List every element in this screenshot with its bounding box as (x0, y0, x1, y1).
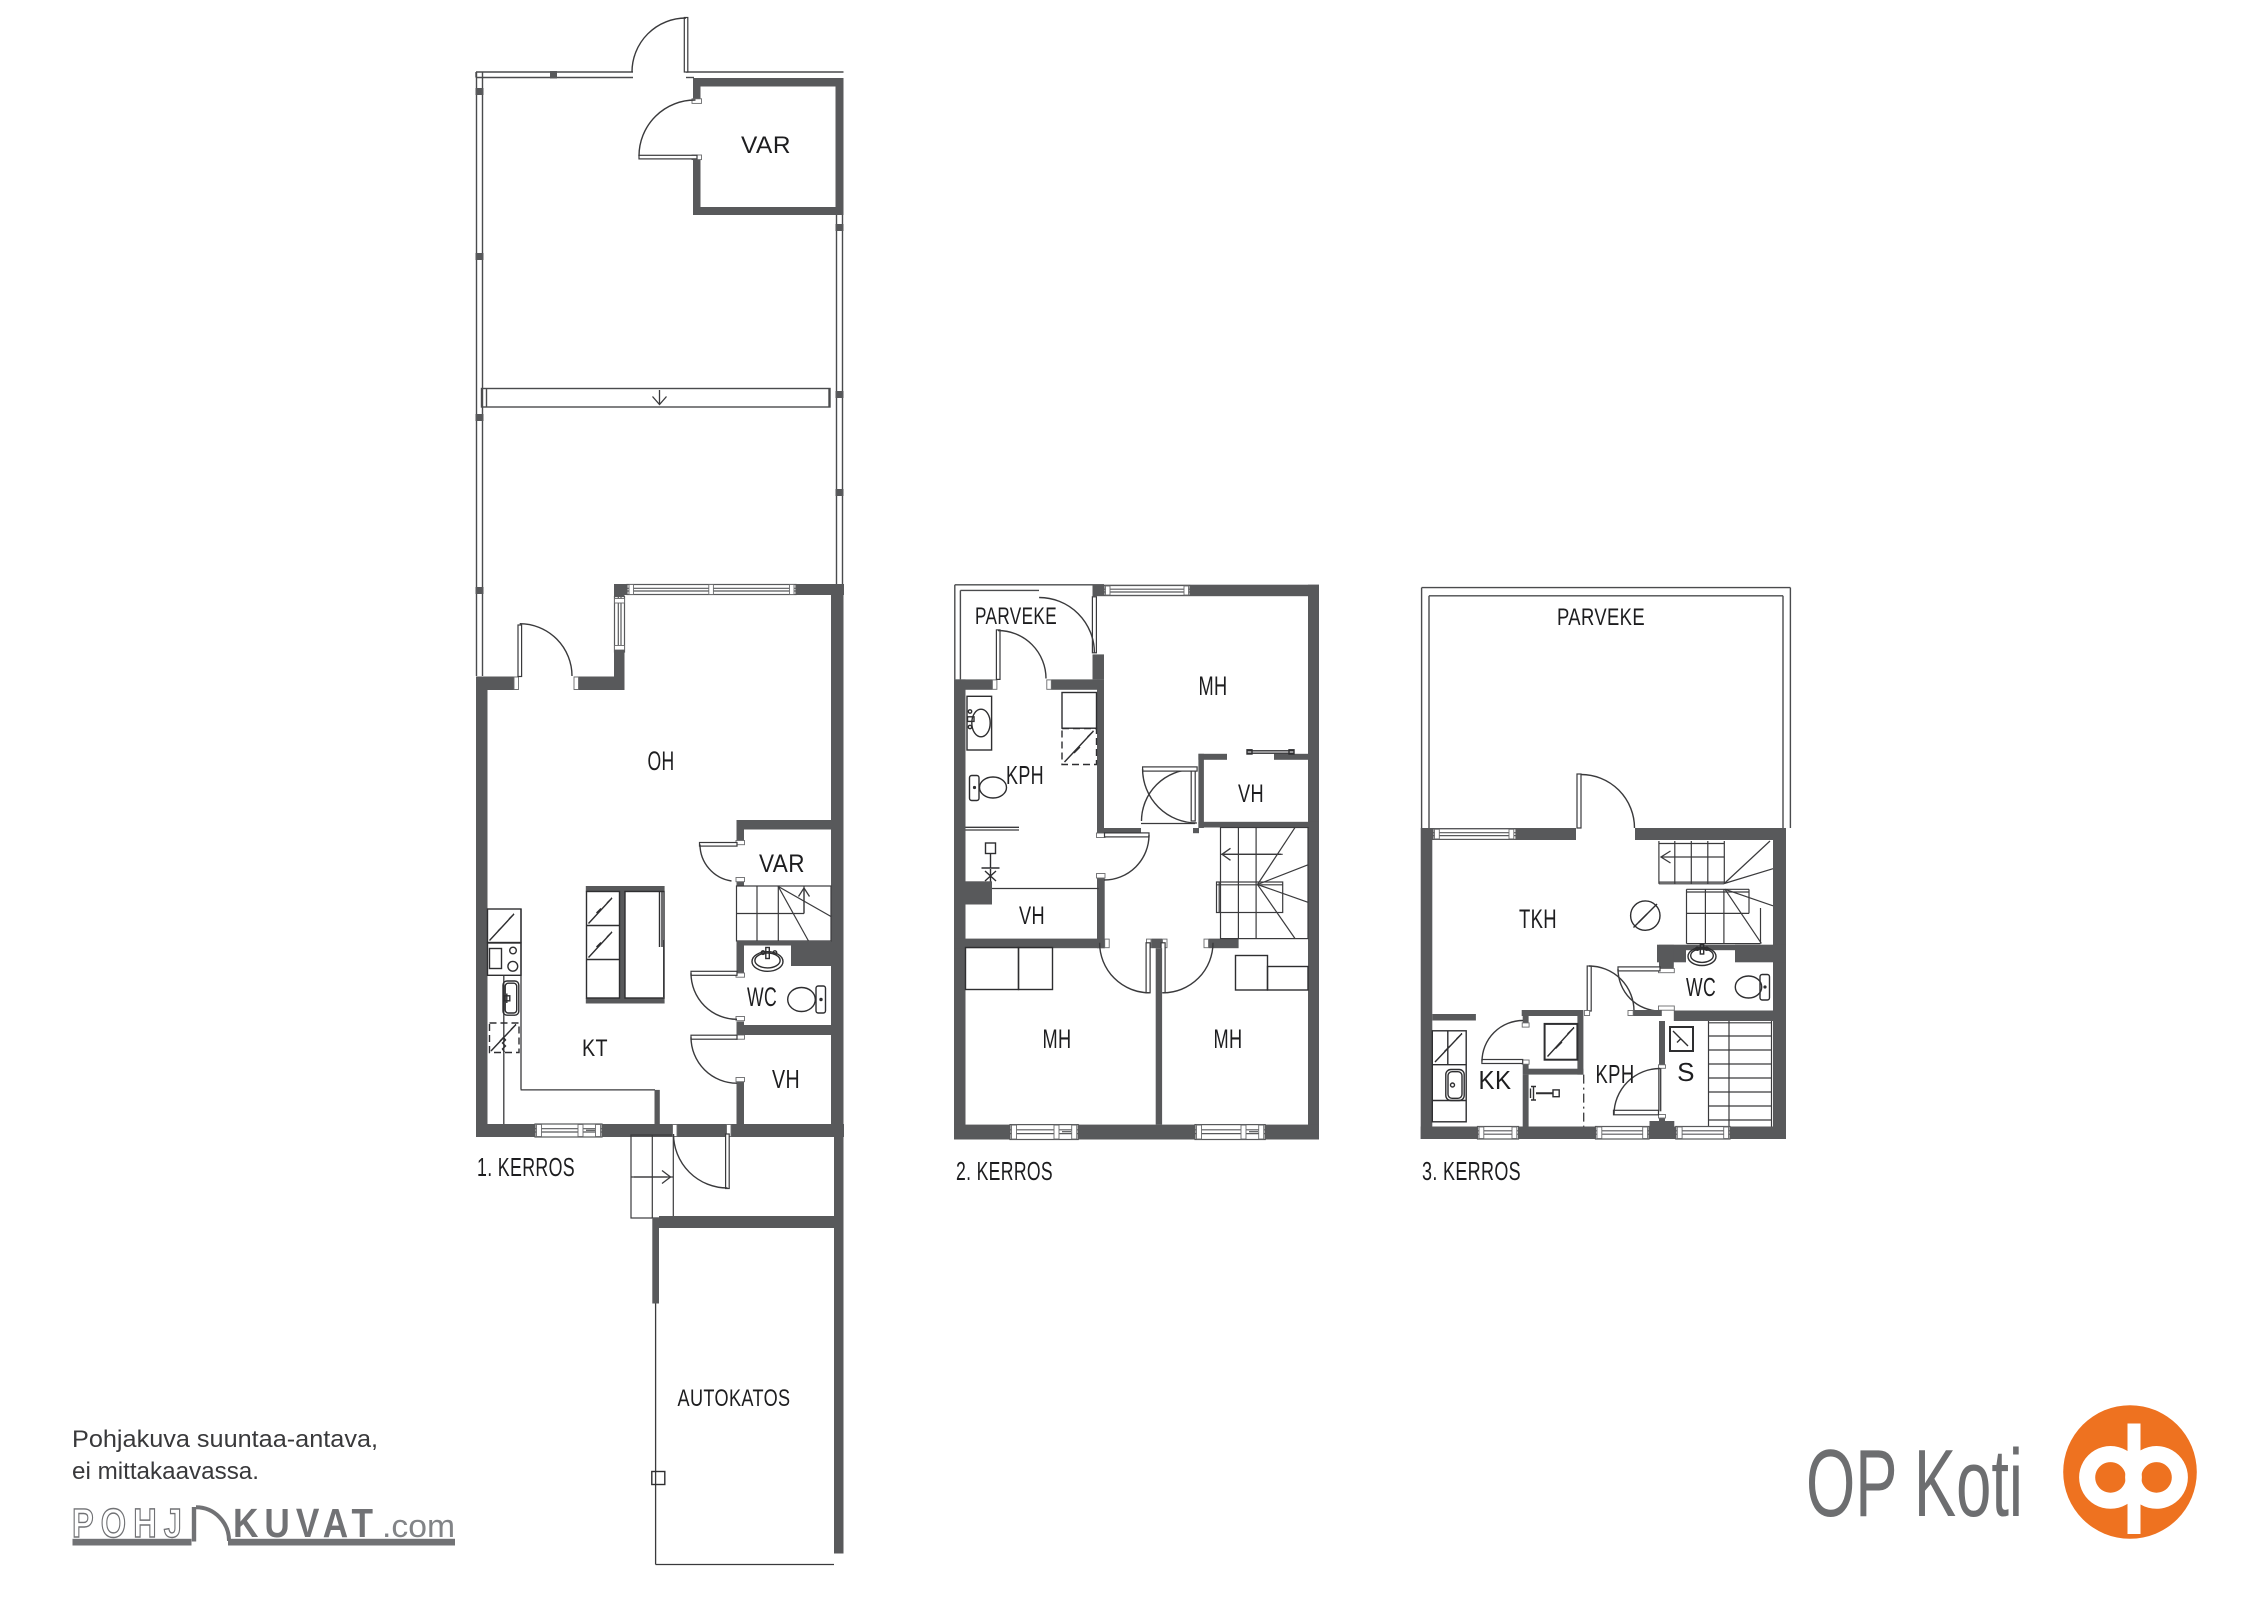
svg-text:PARVEKE: PARVEKE (975, 603, 1057, 630)
svg-text:VH: VH (772, 1064, 800, 1094)
svg-text:Pohjakuva suuntaa-antava,: Pohjakuva suuntaa-antava, (72, 1426, 378, 1453)
svg-text:2. KERROS: 2. KERROS (956, 1156, 1053, 1186)
svg-text:WC: WC (1686, 972, 1716, 1002)
svg-text:3. KERROS: 3. KERROS (1422, 1156, 1521, 1186)
svg-text:VH: VH (1019, 902, 1045, 930)
svg-text:PARVEKE: PARVEKE (1557, 604, 1645, 631)
svg-text:MH: MH (1214, 1024, 1243, 1054)
svg-text:KK: KK (1479, 1065, 1512, 1095)
svg-text:1. KERROS: 1. KERROS (477, 1152, 575, 1182)
svg-text:.com: .com (382, 1508, 455, 1544)
svg-text:MH: MH (1199, 671, 1228, 701)
svg-text:MH: MH (1043, 1024, 1072, 1054)
svg-text:KPH: KPH (1596, 1059, 1635, 1089)
svg-text:VH: VH (1238, 780, 1264, 808)
svg-text:KPH: KPH (1006, 760, 1044, 790)
svg-text:OP Koti: OP Koti (1806, 1430, 2023, 1537)
svg-text:ei mittakaavassa.: ei mittakaavassa. (72, 1458, 259, 1485)
svg-text:OH: OH (648, 746, 675, 776)
svg-text:VAR: VAR (759, 850, 805, 878)
svg-text:KT: KT (582, 1035, 608, 1062)
svg-text:AUTOKATOS: AUTOKATOS (678, 1385, 791, 1412)
svg-text:TKH: TKH (1519, 904, 1557, 934)
svg-text:S: S (1677, 1057, 1695, 1087)
svg-text:VAR: VAR (741, 132, 791, 159)
svg-text:WC: WC (747, 982, 777, 1012)
